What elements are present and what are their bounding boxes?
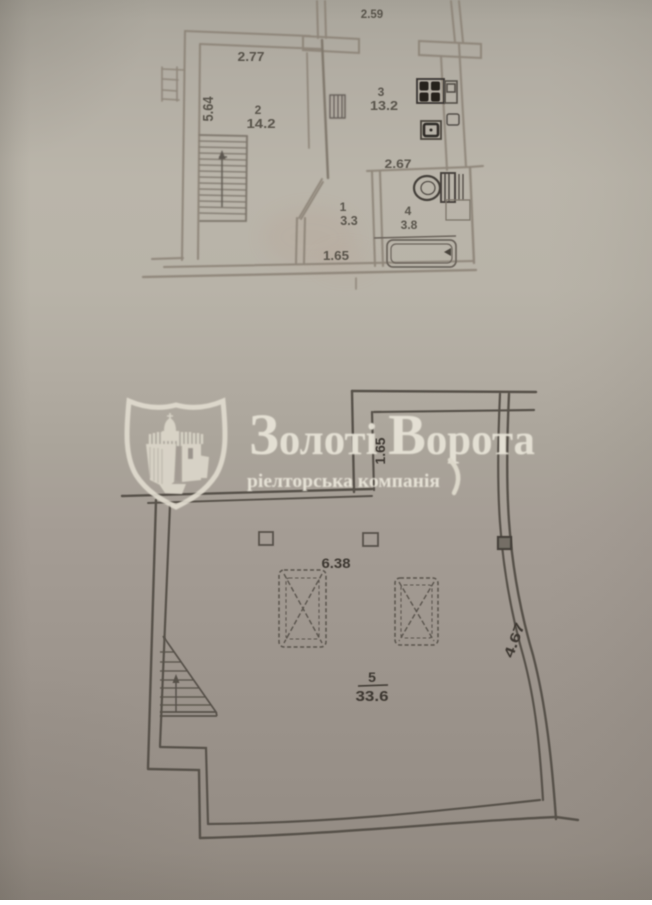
svg-text:2.67: 2.67 xyxy=(385,157,412,171)
svg-text:14.2: 14.2 xyxy=(247,116,276,131)
svg-text:1: 1 xyxy=(340,200,347,214)
svg-text:ріелторська компанія: ріелторська компанія xyxy=(247,472,440,492)
svg-text:2.59: 2.59 xyxy=(361,9,383,21)
svg-text:33.6: 33.6 xyxy=(356,688,389,705)
svg-text:4: 4 xyxy=(405,204,412,218)
svg-text:6.38: 6.38 xyxy=(322,556,352,571)
svg-text:3.3: 3.3 xyxy=(340,214,357,228)
svg-text:5.64: 5.64 xyxy=(200,96,217,122)
svg-text:2: 2 xyxy=(255,103,262,117)
svg-text:1.65: 1.65 xyxy=(323,248,349,263)
svg-text:2.77: 2.77 xyxy=(238,50,265,64)
svg-text:3.8: 3.8 xyxy=(401,218,418,232)
svg-text:5: 5 xyxy=(368,669,376,685)
svg-text:13.2: 13.2 xyxy=(370,98,398,113)
svg-text:3: 3 xyxy=(378,85,385,99)
